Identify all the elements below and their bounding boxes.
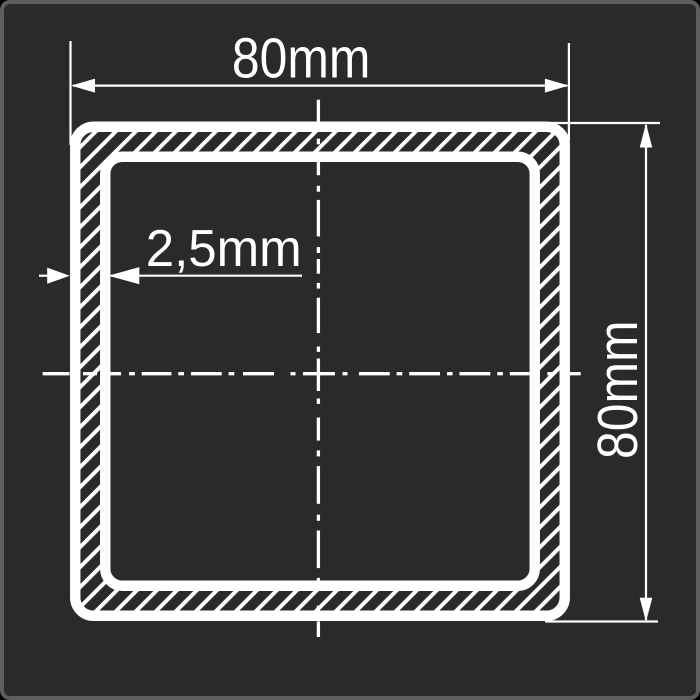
svg-text:80mm: 80mm	[586, 321, 650, 460]
svg-text:2,5mm: 2,5mm	[146, 220, 302, 278]
svg-text:80mm: 80mm	[232, 27, 371, 91]
